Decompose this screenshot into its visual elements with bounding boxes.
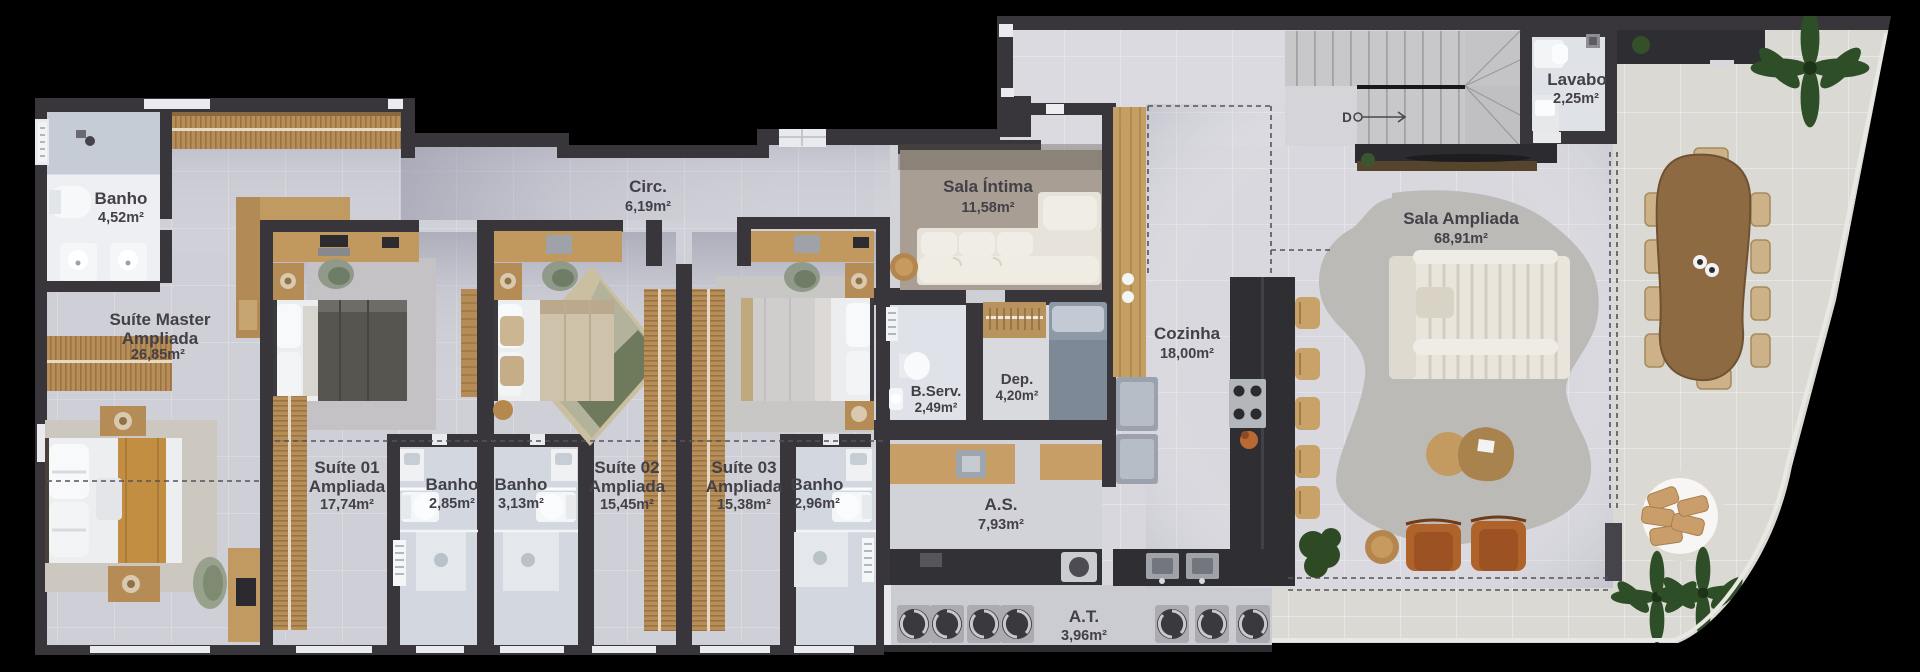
svg-text:2,85m²: 2,85m²	[429, 496, 475, 512]
svg-text:2,25m²: 2,25m²	[1553, 91, 1599, 107]
svg-text:Banho: Banho	[95, 189, 148, 208]
svg-text:Banho: Banho	[426, 475, 479, 494]
svg-text:Banho: Banho	[791, 475, 844, 494]
svg-text:Ampliada: Ampliada	[589, 477, 666, 496]
svg-text:Suíte 02: Suíte 02	[594, 458, 659, 477]
svg-text:11,58m²: 11,58m²	[961, 200, 1014, 216]
svg-text:Ampliada: Ampliada	[309, 477, 386, 496]
svg-text:15,45m²: 15,45m²	[600, 497, 654, 513]
svg-text:Dep.: Dep.	[1001, 371, 1034, 388]
svg-text:Sala Íntima: Sala Íntima	[943, 177, 1033, 196]
svg-text:3,13m²: 3,13m²	[498, 496, 544, 512]
svg-text:Suíte 03: Suíte 03	[711, 458, 776, 477]
svg-text:4,20m²: 4,20m²	[996, 388, 1039, 403]
svg-text:D: D	[1342, 110, 1352, 125]
svg-text:Circ.: Circ.	[629, 177, 667, 196]
svg-text:A.T.: A.T.	[1069, 607, 1099, 626]
svg-text:A.S.: A.S.	[984, 495, 1017, 514]
svg-text:Lavabo: Lavabo	[1547, 70, 1607, 89]
svg-text:Suíte Master: Suíte Master	[109, 310, 210, 329]
svg-text:2,96m²: 2,96m²	[794, 496, 840, 512]
svg-text:Cozinha: Cozinha	[1154, 324, 1221, 343]
svg-text:18,00m²: 18,00m²	[1160, 346, 1214, 362]
svg-text:15,38m²: 15,38m²	[717, 497, 771, 513]
svg-text:Suíte 01: Suíte 01	[314, 458, 379, 477]
svg-text:Sala Ampliada: Sala Ampliada	[1403, 209, 1519, 228]
svg-text:17,74m²: 17,74m²	[320, 497, 374, 513]
svg-text:Banho: Banho	[495, 475, 548, 494]
svg-text:3,96m²: 3,96m²	[1061, 628, 1107, 644]
svg-text:4,52m²: 4,52m²	[98, 210, 144, 226]
svg-text:26,85m²: 26,85m²	[131, 347, 185, 363]
svg-text:Ampliada: Ampliada	[706, 477, 783, 496]
svg-text:68,91m²: 68,91m²	[1434, 231, 1488, 247]
svg-text:B.Serv.: B.Serv.	[911, 383, 962, 400]
svg-text:Ampliada: Ampliada	[122, 329, 199, 348]
svg-text:2,49m²: 2,49m²	[915, 400, 958, 415]
svg-text:6,19m²: 6,19m²	[625, 199, 671, 215]
svg-text:7,93m²: 7,93m²	[978, 517, 1024, 533]
